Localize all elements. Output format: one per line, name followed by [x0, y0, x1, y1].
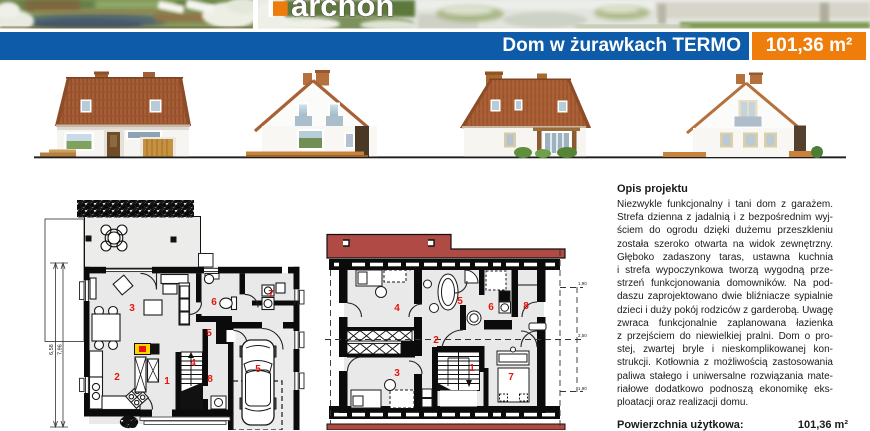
- svg-text:8: 8: [207, 374, 213, 385]
- svg-text:2: 2: [114, 372, 120, 383]
- svg-text:3: 3: [394, 368, 400, 379]
- svg-text:4: 4: [190, 358, 196, 369]
- svg-text:1: 1: [164, 376, 170, 387]
- svg-text:8: 8: [523, 301, 529, 312]
- svg-text:7: 7: [268, 289, 274, 300]
- svg-text:5: 5: [255, 364, 261, 375]
- svg-text:4: 4: [394, 303, 400, 314]
- svg-text:3: 3: [129, 303, 135, 314]
- svg-text:7,96: 7,96: [58, 344, 64, 355]
- svg-text:5: 5: [206, 328, 212, 339]
- svg-text:6: 6: [211, 297, 217, 308]
- svg-text:6: 6: [488, 302, 494, 313]
- svg-text:2,50: 2,50: [578, 333, 587, 338]
- svg-text:6,58: 6,58: [49, 344, 55, 355]
- svg-text:7: 7: [508, 372, 514, 383]
- svg-text:archon: archon: [291, 0, 394, 23]
- svg-text:2: 2: [433, 335, 439, 346]
- svg-text:1,90: 1,90: [578, 281, 587, 286]
- svg-text:1: 1: [469, 363, 475, 374]
- svg-text:1,90: 1,90: [578, 386, 587, 391]
- svg-text:5: 5: [457, 296, 463, 307]
